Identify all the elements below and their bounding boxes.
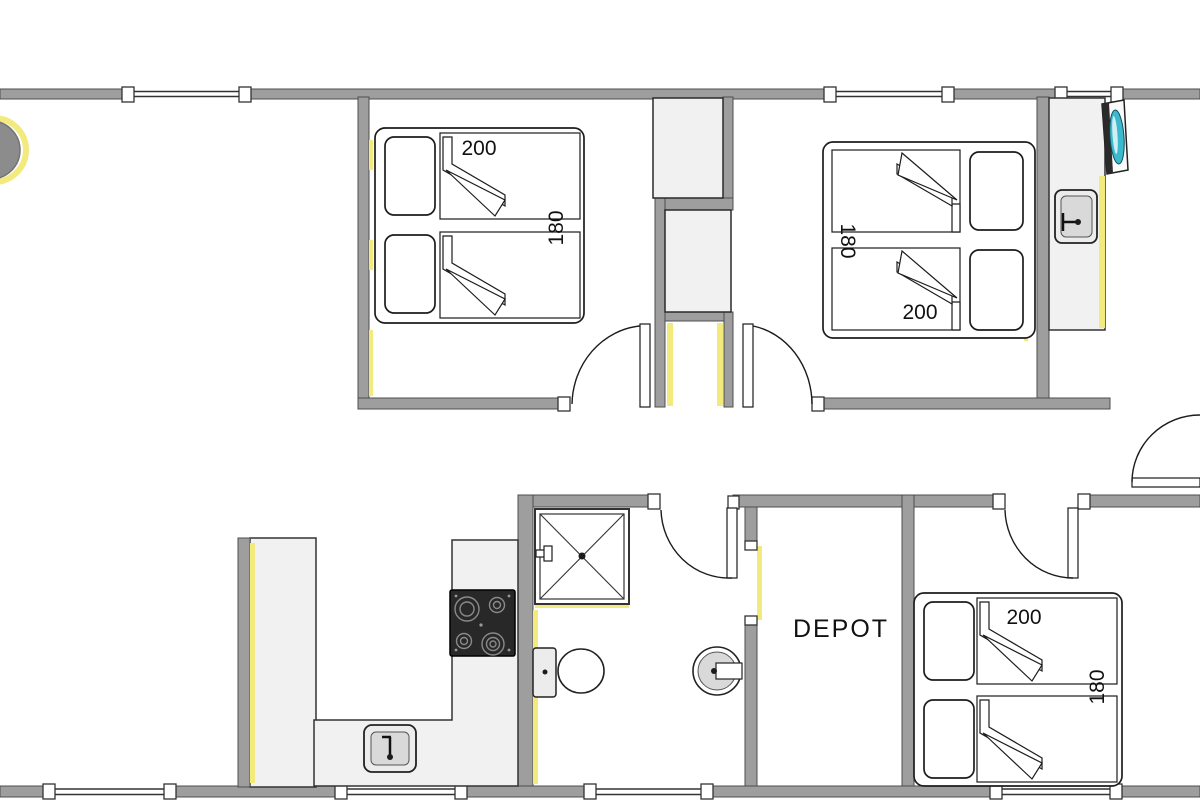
washbasin: [693, 647, 742, 695]
pillow: [385, 137, 435, 215]
door-swing-arc: [572, 326, 640, 404]
floor-plan-drawing: 200 180 180 200 DEPOT 200 180: [0, 0, 1200, 800]
utility-sink: [1055, 190, 1097, 243]
bed-width-label: 200: [902, 301, 937, 324]
entrance-door: [1132, 415, 1200, 487]
door-swing-arc: [1005, 510, 1073, 578]
bed-length-label: 180: [836, 223, 859, 258]
pillow: [385, 235, 435, 313]
pillow: [970, 152, 1023, 230]
shaft-lower: [665, 210, 731, 312]
door-swing-arc: [1132, 415, 1200, 482]
kitchen-sink: [364, 725, 416, 772]
door-leaf: [727, 508, 737, 578]
toilet: [533, 648, 604, 697]
door-swing-arc: [661, 510, 732, 578]
door-leaf: [1068, 508, 1078, 578]
window-bottom-1: [43, 784, 176, 799]
duvet: [952, 204, 960, 232]
bed-width-label: 200: [1006, 606, 1041, 629]
bed-length-label: 180: [1086, 669, 1109, 704]
door-bedroom-top-left: [558, 324, 650, 411]
door-bedroom-bottom-right: [993, 494, 1090, 578]
window-bottom-3: [584, 784, 713, 799]
door-leaf: [640, 324, 650, 407]
door-leaf: [743, 324, 753, 407]
floor-plan-canvas: 200 180 180 200 DEPOT 200 180: [0, 0, 1200, 800]
cooktop: [450, 590, 515, 656]
door-bedroom-top-right: [743, 324, 824, 411]
bed-length-label: 180: [545, 210, 568, 245]
pillow: [970, 250, 1023, 330]
shower: [535, 509, 629, 604]
depot-room-label: DEPOT: [793, 615, 889, 643]
washing-machine: [1102, 100, 1128, 174]
bed-width-label: 200: [461, 137, 496, 160]
depot-doorway: [745, 541, 757, 625]
door-leaf: [1132, 478, 1200, 487]
shaft-upper: [653, 98, 723, 198]
window-top-1: [122, 87, 251, 102]
pillow: [924, 602, 974, 680]
door-bathroom: [648, 494, 739, 578]
door-swing-arc: [753, 326, 812, 404]
window-top-2: [824, 87, 954, 102]
duvet: [952, 302, 960, 330]
fireplace-stove: [0, 118, 26, 182]
pillow: [924, 700, 974, 778]
